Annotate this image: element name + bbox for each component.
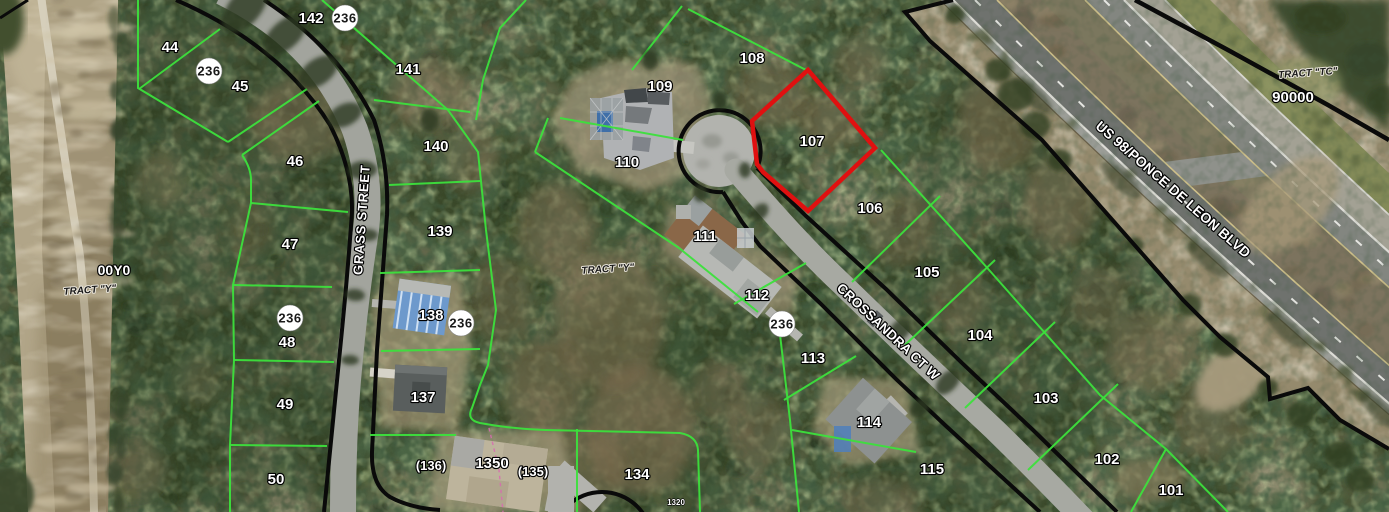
svg-text:236: 236 [770,317,793,332]
svg-text:112: 112 [745,287,769,304]
svg-text:106: 106 [857,200,882,217]
svg-text:111: 111 [693,228,716,245]
svg-text:134: 134 [624,466,650,483]
svg-text:1320: 1320 [667,498,685,507]
svg-text:(135): (135) [518,464,548,479]
svg-text:45: 45 [232,78,249,95]
svg-text:236: 236 [333,11,356,26]
svg-text:90000: 90000 [1272,89,1314,106]
svg-text:141: 141 [395,61,420,78]
svg-text:103: 103 [1033,390,1058,407]
svg-text:49: 49 [277,396,294,413]
svg-text:236: 236 [197,64,220,79]
svg-text:140: 140 [423,138,448,155]
svg-text:1350: 1350 [475,455,508,472]
svg-text:44: 44 [162,39,179,56]
svg-text:137: 137 [410,389,435,406]
svg-text:101: 101 [1158,482,1183,499]
svg-text:110: 110 [615,154,639,171]
svg-text:105: 105 [914,264,939,281]
svg-text:236: 236 [449,316,472,331]
svg-text:(136): (136) [416,458,446,473]
svg-text:108: 108 [739,50,764,67]
svg-text:46: 46 [287,153,304,170]
svg-text:114: 114 [857,414,882,431]
svg-text:109: 109 [647,78,672,95]
svg-text:50: 50 [268,471,285,488]
svg-text:113: 113 [801,350,825,367]
svg-text:138: 138 [418,307,443,324]
svg-text:48: 48 [279,334,296,351]
svg-text:104: 104 [967,327,993,344]
svg-text:47: 47 [282,236,299,253]
svg-text:115: 115 [920,461,944,478]
svg-text:107: 107 [799,133,824,150]
svg-text:142: 142 [298,10,323,27]
svg-text:236: 236 [278,311,301,326]
svg-text:102: 102 [1094,451,1119,468]
svg-text:00Y0: 00Y0 [98,262,131,278]
svg-text:139: 139 [427,223,452,240]
